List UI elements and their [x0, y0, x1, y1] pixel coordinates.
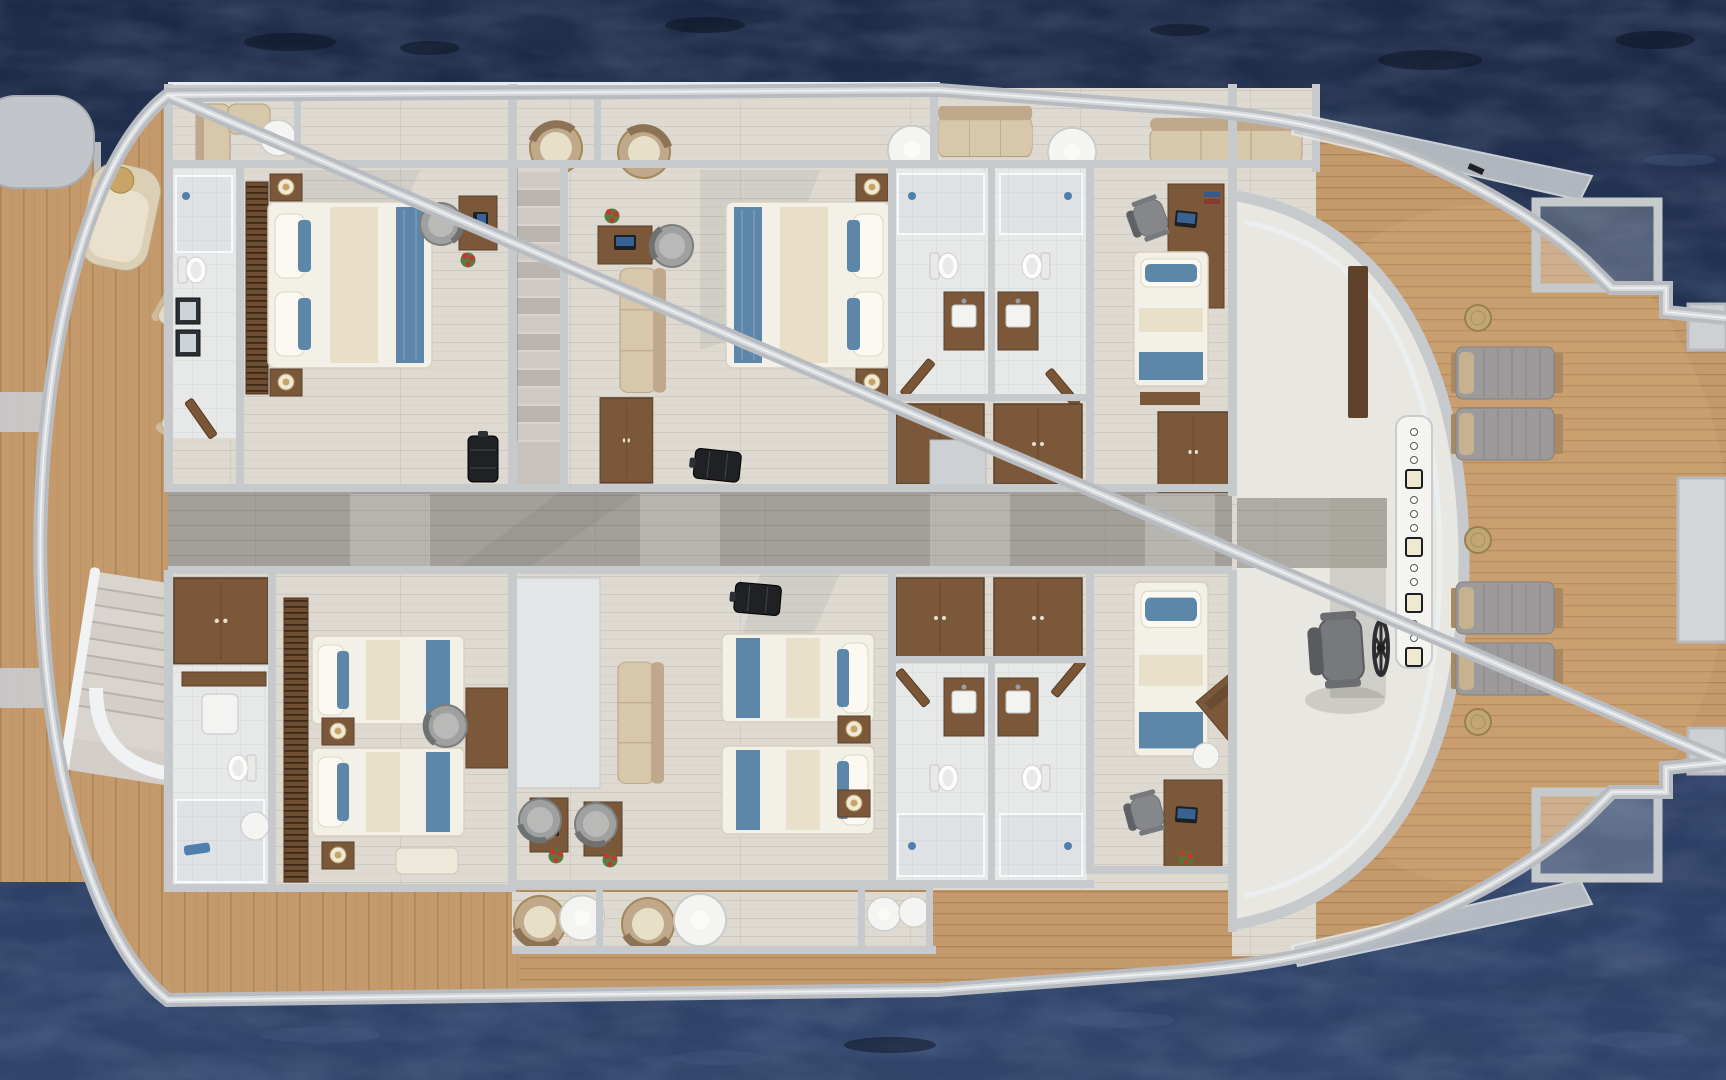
deck-plan-canvas [0, 0, 1726, 1080]
bow-pulpit [1678, 478, 1726, 642]
bench [396, 848, 458, 874]
nightstand [838, 716, 870, 743]
sofa [938, 106, 1032, 157]
nightstand [270, 174, 302, 201]
suitcase [728, 582, 781, 616]
white-cabinet-block [514, 578, 600, 788]
deck-stool [1465, 305, 1491, 331]
nightstand [838, 790, 870, 817]
shower-head [908, 842, 916, 850]
flower-pot [603, 853, 618, 868]
flower-pot [549, 849, 564, 864]
round-table [899, 897, 929, 927]
nightstand [322, 718, 354, 745]
vanity-sink [998, 678, 1038, 736]
vanity-sink [176, 298, 200, 324]
double-bed [268, 202, 432, 368]
toilet [930, 253, 958, 279]
suitcase [468, 431, 498, 482]
shower-enclosure [1000, 174, 1082, 234]
louver-headboard [284, 598, 308, 882]
sun-lounger [1451, 582, 1563, 634]
toilet [1022, 253, 1050, 279]
round-table [674, 894, 726, 946]
shower-enclosure [176, 176, 232, 252]
twin-bed [722, 634, 874, 722]
vanity-sink [176, 330, 200, 356]
shower-enclosure [898, 174, 984, 234]
suitcase [688, 447, 742, 482]
vanity-sink [998, 292, 1038, 350]
vanity-sink [202, 694, 238, 734]
twin-bed [312, 748, 464, 836]
nightstand [322, 842, 354, 869]
flower-pot [461, 253, 476, 268]
flower-pot [605, 209, 620, 224]
desk [466, 688, 508, 768]
vanity-sink [944, 292, 984, 350]
wood-panel-door [1348, 266, 1368, 418]
deck-stool [1465, 709, 1491, 735]
nightstand [270, 369, 302, 396]
flower-pot [1179, 851, 1194, 866]
round-table [867, 897, 901, 931]
toilet [228, 755, 256, 781]
louver-headboard [246, 182, 268, 394]
desk [1164, 780, 1222, 868]
room-bathroom-port-aft [173, 168, 236, 439]
toilet [1022, 765, 1050, 791]
single-bed [1134, 582, 1208, 756]
shower-head [1064, 842, 1072, 850]
wardrobe [174, 578, 268, 664]
sofa [618, 662, 664, 784]
wardrobe [600, 398, 653, 483]
vanity-sink [944, 678, 984, 736]
sun-lounger [1451, 408, 1563, 460]
shower-head [908, 192, 916, 200]
wardrobe [1158, 412, 1228, 492]
desk [598, 226, 652, 264]
toilet [178, 257, 206, 283]
wardrobe [896, 578, 984, 658]
nightstand [856, 174, 888, 201]
shower-head [182, 192, 190, 200]
round-table [1193, 743, 1219, 769]
bed-bench [1140, 392, 1200, 405]
single-bed [1134, 252, 1208, 386]
shower-head [1064, 192, 1072, 200]
round-table [241, 812, 269, 840]
deck-stool [1465, 527, 1491, 553]
wardrobe [994, 578, 1082, 658]
room-stairwell [512, 168, 564, 486]
toilet [930, 765, 958, 791]
yacht-deck-plan-screenshot [0, 0, 1726, 1080]
sun-lounger [1451, 347, 1563, 399]
